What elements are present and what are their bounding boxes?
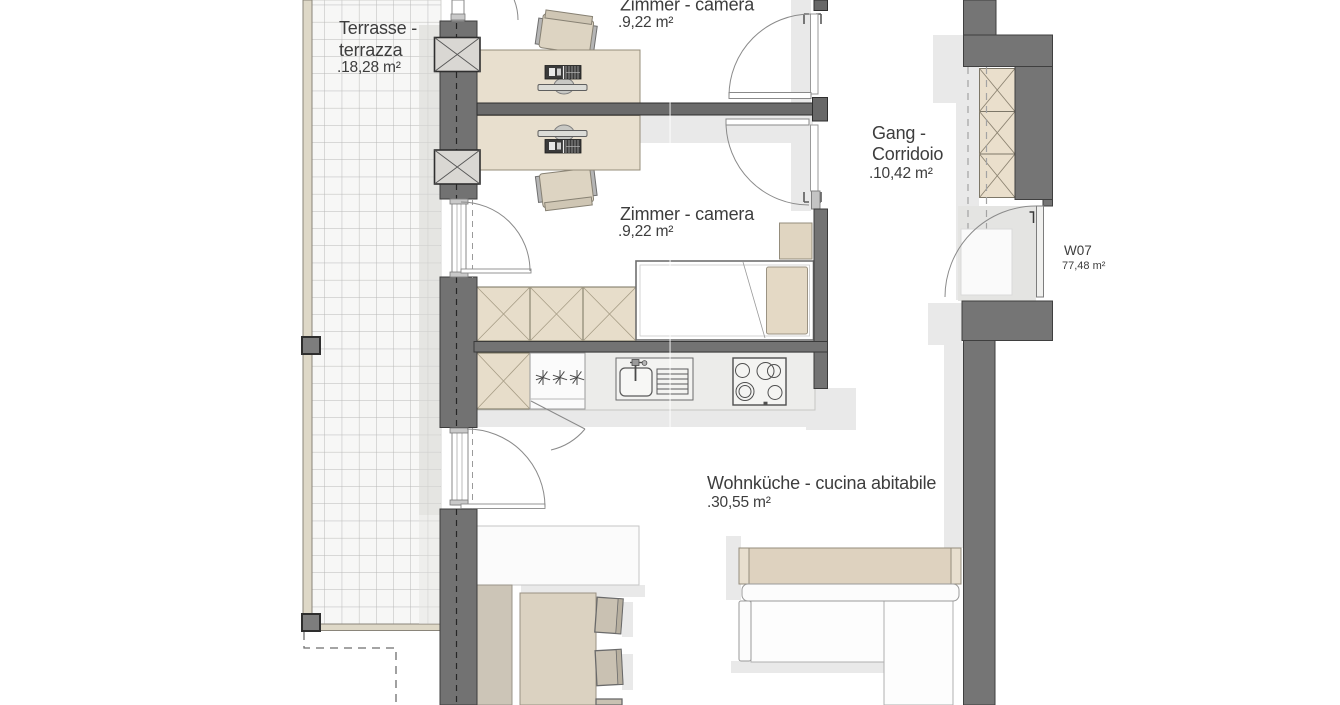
svg-text:W07: W07 [1064, 243, 1092, 258]
svg-text:.30,55 m²: .30,55 m² [707, 494, 771, 511]
svg-text:.9,22 m²: .9,22 m² [618, 223, 673, 240]
svg-text:terrazza: terrazza [339, 40, 404, 60]
svg-text:.9,22 m²: .9,22 m² [618, 14, 673, 31]
svg-text:Zimmer - camera: Zimmer - camera [620, 0, 755, 15]
svg-text:Wohnküche - cucina abitabile: Wohnküche - cucina abitabile [707, 473, 936, 493]
svg-text:.10,42 m²: .10,42 m² [869, 165, 933, 182]
svg-text:Zimmer - camera: Zimmer - camera [620, 204, 755, 224]
svg-text:77,48 m²: 77,48 m² [1062, 260, 1106, 272]
svg-text:.18,28 m²: .18,28 m² [337, 59, 401, 76]
svg-text:Gang -: Gang - [872, 123, 926, 143]
svg-text:Terrasse -: Terrasse - [339, 18, 417, 38]
svg-text:Corridoio: Corridoio [872, 144, 943, 164]
